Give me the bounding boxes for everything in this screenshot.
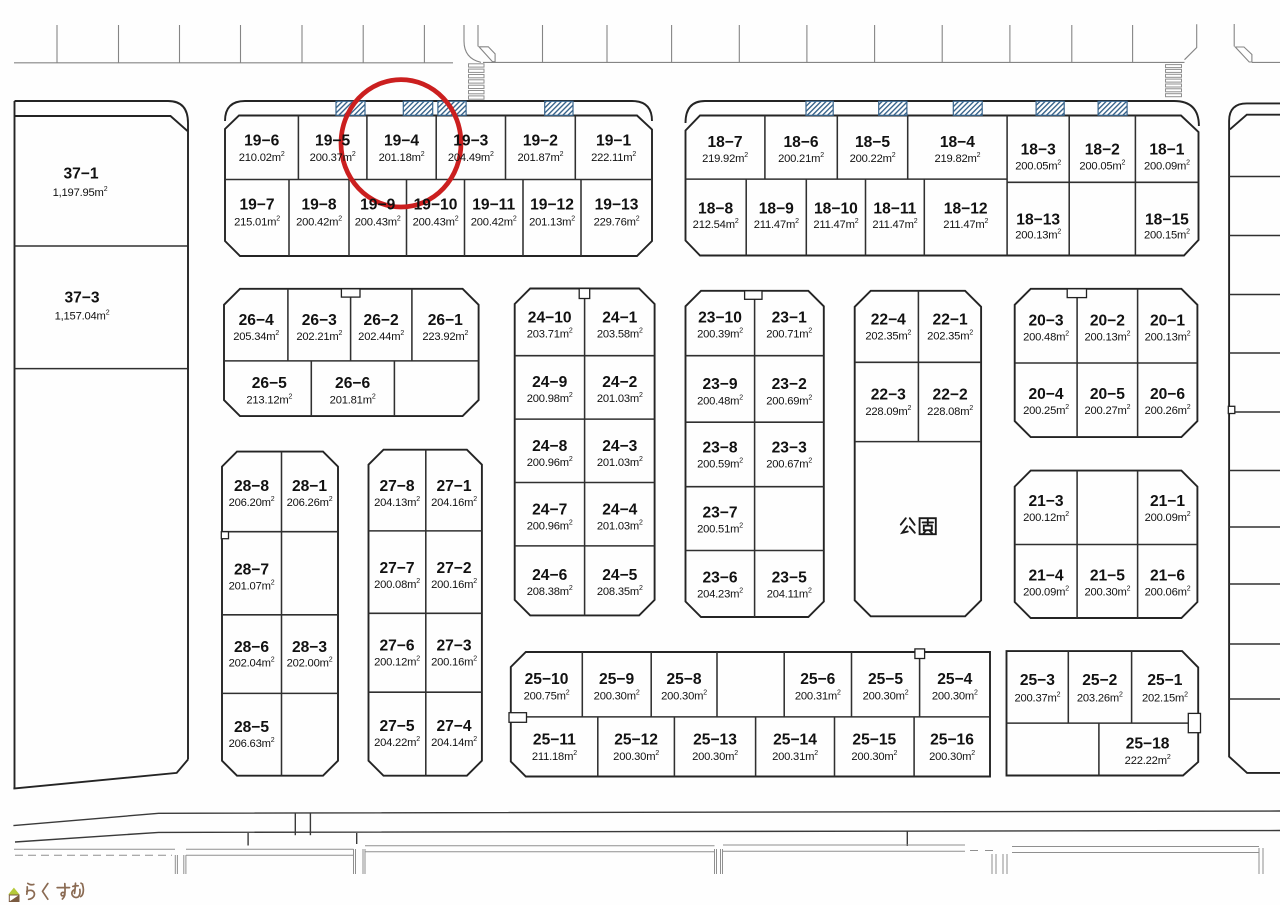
svg-text:25−16: 25−16 [930,732,974,749]
svg-text:25−2: 25−2 [1082,672,1117,689]
svg-text:206.63m2: 206.63m2 [229,737,275,750]
svg-text:204.49m2: 204.49m2 [448,151,494,164]
svg-text:25−3: 25−3 [1020,672,1055,689]
svg-text:18−2: 18−2 [1085,141,1120,158]
svg-text:23−9: 23−9 [702,376,737,393]
svg-text:222.22m2: 222.22m2 [1125,754,1171,767]
svg-text:18−8: 18−8 [698,201,733,218]
svg-text:1,197.95m2: 1,197.95m2 [53,186,108,199]
svg-text:200.31m2: 200.31m2 [795,689,841,702]
svg-text:27−1: 27−1 [436,478,471,495]
svg-text:202.35m2: 202.35m2 [927,330,973,343]
svg-text:25−8: 25−8 [666,671,701,688]
svg-text:219.82m2: 219.82m2 [934,152,980,165]
svg-text:210.02m2: 210.02m2 [239,151,285,164]
svg-text:26−5: 26−5 [252,375,287,392]
svg-text:28−7: 28−7 [234,561,269,578]
svg-text:200.42m2: 200.42m2 [296,215,342,228]
svg-text:200.30m2: 200.30m2 [613,750,659,763]
svg-text:25−9: 25−9 [599,671,634,688]
svg-text:202.21m2: 202.21m2 [296,330,342,343]
svg-text:26−3: 26−3 [302,312,337,329]
svg-text:200.21m2: 200.21m2 [778,152,824,165]
svg-text:28−3: 28−3 [292,639,327,656]
svg-text:28−1: 28−1 [292,478,327,495]
svg-text:25−11: 25−11 [533,732,576,749]
svg-text:200.30m2: 200.30m2 [661,689,707,702]
svg-text:204.16m2: 204.16m2 [431,496,477,509]
svg-text:223.92m2: 223.92m2 [422,330,468,343]
svg-text:200.27m2: 200.27m2 [1084,404,1130,417]
svg-text:19−9: 19−9 [360,196,395,213]
svg-text:18−10: 18−10 [814,201,858,218]
svg-text:200.05m2: 200.05m2 [1015,159,1061,172]
svg-text:200.12m2: 200.12m2 [1023,511,1069,524]
svg-text:27−4: 27−4 [436,718,471,735]
svg-text:204.14m2: 204.14m2 [431,736,477,749]
svg-text:211.47m2: 211.47m2 [813,218,858,231]
svg-text:28−5: 28−5 [234,719,269,736]
svg-text:200.98m2: 200.98m2 [527,392,573,405]
svg-text:25−10: 25−10 [525,671,569,688]
svg-text:201.87m2: 201.87m2 [517,151,563,164]
svg-text:24−2: 24−2 [602,374,637,391]
svg-text:228.09m2: 228.09m2 [865,405,911,418]
svg-text:25−1: 25−1 [1147,672,1182,689]
svg-text:19−10: 19−10 [414,196,458,213]
svg-text:228.08m2: 228.08m2 [927,405,973,418]
svg-text:25−13: 25−13 [693,732,737,749]
svg-text:25−18: 25−18 [1126,735,1170,752]
svg-text:204.13m2: 204.13m2 [374,496,420,509]
svg-text:19−1: 19−1 [596,133,631,150]
svg-text:200.30m2: 200.30m2 [1084,585,1130,598]
svg-text:200.25m2: 200.25m2 [1023,404,1069,417]
svg-text:18−7: 18−7 [707,134,742,151]
svg-text:1,157.04m2: 1,157.04m2 [55,309,110,322]
svg-text:201.03m2: 201.03m2 [597,392,643,405]
svg-text:19−6: 19−6 [244,133,279,150]
svg-text:21−1: 21−1 [1150,493,1185,510]
svg-text:23−6: 23−6 [702,569,737,586]
svg-text:200.43m2: 200.43m2 [413,215,459,228]
svg-text:200.96m2: 200.96m2 [527,519,573,532]
svg-text:200.09m2: 200.09m2 [1145,511,1191,524]
svg-text:211.18m2: 211.18m2 [532,750,577,763]
svg-text:23−10: 23−10 [698,310,742,327]
svg-text:206.26m2: 206.26m2 [287,496,333,509]
svg-text:200.30m2: 200.30m2 [692,750,738,763]
svg-text:203.26m2: 203.26m2 [1077,691,1123,704]
svg-text:23−8: 23−8 [702,440,737,457]
svg-text:200.09m2: 200.09m2 [1144,159,1190,172]
svg-text:200.39m2: 200.39m2 [697,327,743,340]
svg-text:21−5: 21−5 [1090,568,1125,585]
svg-text:205.34m2: 205.34m2 [233,330,279,343]
svg-text:200.13m2: 200.13m2 [1015,228,1061,241]
svg-text:25−6: 25−6 [800,671,835,688]
svg-text:200.30m2: 200.30m2 [932,689,978,702]
svg-text:22−4: 22−4 [871,311,906,328]
svg-text:200.37m2: 200.37m2 [1014,691,1060,704]
svg-text:222.11m2: 222.11m2 [591,151,636,164]
svg-text:19−12: 19−12 [530,196,574,213]
svg-text:18−3: 18−3 [1021,141,1056,158]
svg-text:24−4: 24−4 [602,501,637,518]
svg-text:200.42m2: 200.42m2 [471,215,517,228]
svg-text:19−3: 19−3 [453,133,488,150]
svg-text:200.96m2: 200.96m2 [527,456,573,469]
svg-text:18−5: 18−5 [855,134,890,151]
svg-text:18−1: 18−1 [1149,141,1184,158]
svg-text:21−3: 21−3 [1028,493,1063,510]
svg-text:20−6: 20−6 [1150,386,1185,403]
svg-text:24−5: 24−5 [602,567,637,584]
svg-text:201.03m2: 201.03m2 [597,456,643,469]
svg-text:25−15: 25−15 [852,732,896,749]
svg-text:200.26m2: 200.26m2 [1145,404,1191,417]
svg-text:19−5: 19−5 [315,133,350,150]
svg-text:23−1: 23−1 [772,310,807,327]
svg-text:211.47m2: 211.47m2 [872,218,917,231]
svg-text:23−3: 23−3 [772,440,807,457]
svg-text:200.13m2: 200.13m2 [1084,330,1130,343]
svg-text:201.81m2: 201.81m2 [330,393,376,406]
svg-text:27−2: 27−2 [436,560,471,577]
svg-text:27−8: 27−8 [379,478,414,495]
svg-text:22−3: 22−3 [871,387,906,404]
svg-text:24−3: 24−3 [602,438,637,455]
svg-text:200.12m2: 200.12m2 [374,655,420,668]
svg-text:200.30m2: 200.30m2 [929,750,975,763]
svg-text:200.43m2: 200.43m2 [355,215,401,228]
svg-text:19−13: 19−13 [595,196,639,213]
svg-text:211.47m2: 211.47m2 [943,218,988,231]
svg-text:19−4: 19−4 [384,133,419,150]
svg-text:200.05m2: 200.05m2 [1079,159,1125,172]
svg-text:208.35m2: 208.35m2 [597,585,643,598]
svg-text:24−10: 24−10 [528,309,572,326]
svg-text:37−1: 37−1 [63,166,98,183]
svg-text:20−4: 20−4 [1028,386,1063,403]
svg-text:28−8: 28−8 [234,478,269,495]
svg-text:206.20m2: 206.20m2 [229,496,275,509]
svg-text:20−2: 20−2 [1090,313,1125,330]
svg-text:18−9: 18−9 [759,201,794,218]
svg-text:200.09m2: 200.09m2 [1023,585,1069,598]
svg-text:208.38m2: 208.38m2 [527,585,573,598]
svg-text:18−13: 18−13 [1016,212,1060,229]
svg-text:21−6: 21−6 [1150,568,1185,585]
svg-text:24−1: 24−1 [602,309,637,326]
svg-text:204.23m2: 204.23m2 [697,587,743,600]
svg-text:200.13m2: 200.13m2 [1145,330,1191,343]
svg-text:27−6: 27−6 [379,638,414,655]
svg-text:200.22m2: 200.22m2 [850,152,896,165]
svg-text:200.16m2: 200.16m2 [431,578,477,591]
svg-text:200.67m2: 200.67m2 [766,458,812,471]
svg-text:23−5: 23−5 [772,569,807,586]
svg-text:200.30m2: 200.30m2 [594,689,640,702]
svg-text:20−3: 20−3 [1028,313,1063,330]
svg-text:212.54m2: 212.54m2 [693,218,739,231]
svg-text:200.30m2: 200.30m2 [851,750,897,763]
svg-text:19−7: 19−7 [239,196,274,213]
svg-text:18−12: 18−12 [944,201,988,218]
svg-text:25−5: 25−5 [868,671,903,688]
svg-text:22−1: 22−1 [933,311,968,328]
svg-text:20−1: 20−1 [1150,313,1185,330]
svg-text:219.92m2: 219.92m2 [702,152,748,165]
svg-text:26−2: 26−2 [364,312,399,329]
svg-text:200.75m2: 200.75m2 [524,689,570,702]
svg-text:200.48m2: 200.48m2 [1023,330,1069,343]
svg-text:202.04m2: 202.04m2 [229,657,275,670]
svg-text:201.07m2: 201.07m2 [229,579,275,592]
svg-text:200.71m2: 200.71m2 [766,327,812,340]
svg-text:201.03m2: 201.03m2 [597,519,643,532]
svg-text:37−3: 37−3 [64,290,99,307]
svg-text:204.22m2: 204.22m2 [374,736,420,749]
svg-text:203.58m2: 203.58m2 [597,327,643,340]
svg-text:24−7: 24−7 [532,501,567,518]
svg-text:21−4: 21−4 [1028,568,1063,585]
svg-text:19−2: 19−2 [523,133,558,150]
svg-text:28−6: 28−6 [234,639,269,656]
svg-text:200.59m2: 200.59m2 [697,458,743,471]
svg-text:200.69m2: 200.69m2 [766,394,812,407]
svg-text:24−8: 24−8 [532,438,567,455]
svg-text:213.12m2: 213.12m2 [246,393,292,406]
svg-text:200.51m2: 200.51m2 [697,522,743,535]
svg-text:204.11m2: 204.11m2 [767,587,812,600]
svg-text:26−1: 26−1 [428,312,463,329]
svg-text:215.01m2: 215.01m2 [234,215,280,228]
svg-text:20−5: 20−5 [1090,386,1125,403]
svg-text:202.44m2: 202.44m2 [358,330,404,343]
svg-text:23−7: 23−7 [702,505,737,522]
svg-text:200.15m2: 200.15m2 [1144,228,1190,241]
svg-text:23−2: 23−2 [772,376,807,393]
svg-text:25−14: 25−14 [773,732,817,749]
svg-text:22−2: 22−2 [933,387,968,404]
svg-text:26−4: 26−4 [239,312,274,329]
svg-text:19−8: 19−8 [301,196,336,213]
svg-text:24−9: 24−9 [532,374,567,391]
svg-text:229.76m2: 229.76m2 [594,215,640,228]
svg-text:26−6: 26−6 [335,375,370,392]
svg-text:18−6: 18−6 [783,134,818,151]
svg-text:25−12: 25−12 [614,732,658,749]
svg-text:200.08m2: 200.08m2 [374,578,420,591]
svg-text:200.48m2: 200.48m2 [697,394,743,407]
svg-text:18−11: 18−11 [873,201,916,218]
svg-text:18−15: 18−15 [1145,212,1189,229]
svg-text:201.18m2: 201.18m2 [379,151,425,164]
svg-text:202.35m2: 202.35m2 [865,330,911,343]
svg-text:200.31m2: 200.31m2 [772,750,818,763]
svg-text:200.30m2: 200.30m2 [863,689,909,702]
svg-text:202.00m2: 202.00m2 [287,657,333,670]
svg-text:202.15m2: 202.15m2 [1142,691,1188,704]
svg-text:200.06m2: 200.06m2 [1145,585,1191,598]
svg-text:211.47m2: 211.47m2 [754,218,799,231]
svg-text:201.13m2: 201.13m2 [529,215,575,228]
svg-text:25−4: 25−4 [937,671,972,688]
svg-text:19−11: 19−11 [472,196,515,213]
svg-text:200.37m2: 200.37m2 [310,151,356,164]
svg-text:18−4: 18−4 [940,134,975,151]
svg-text:27−7: 27−7 [379,560,414,577]
svg-text:203.71m2: 203.71m2 [527,327,573,340]
svg-text:24−6: 24−6 [532,567,567,584]
svg-text:27−5: 27−5 [379,718,414,735]
svg-text:27−3: 27−3 [436,638,471,655]
svg-text:200.16m2: 200.16m2 [431,655,477,668]
